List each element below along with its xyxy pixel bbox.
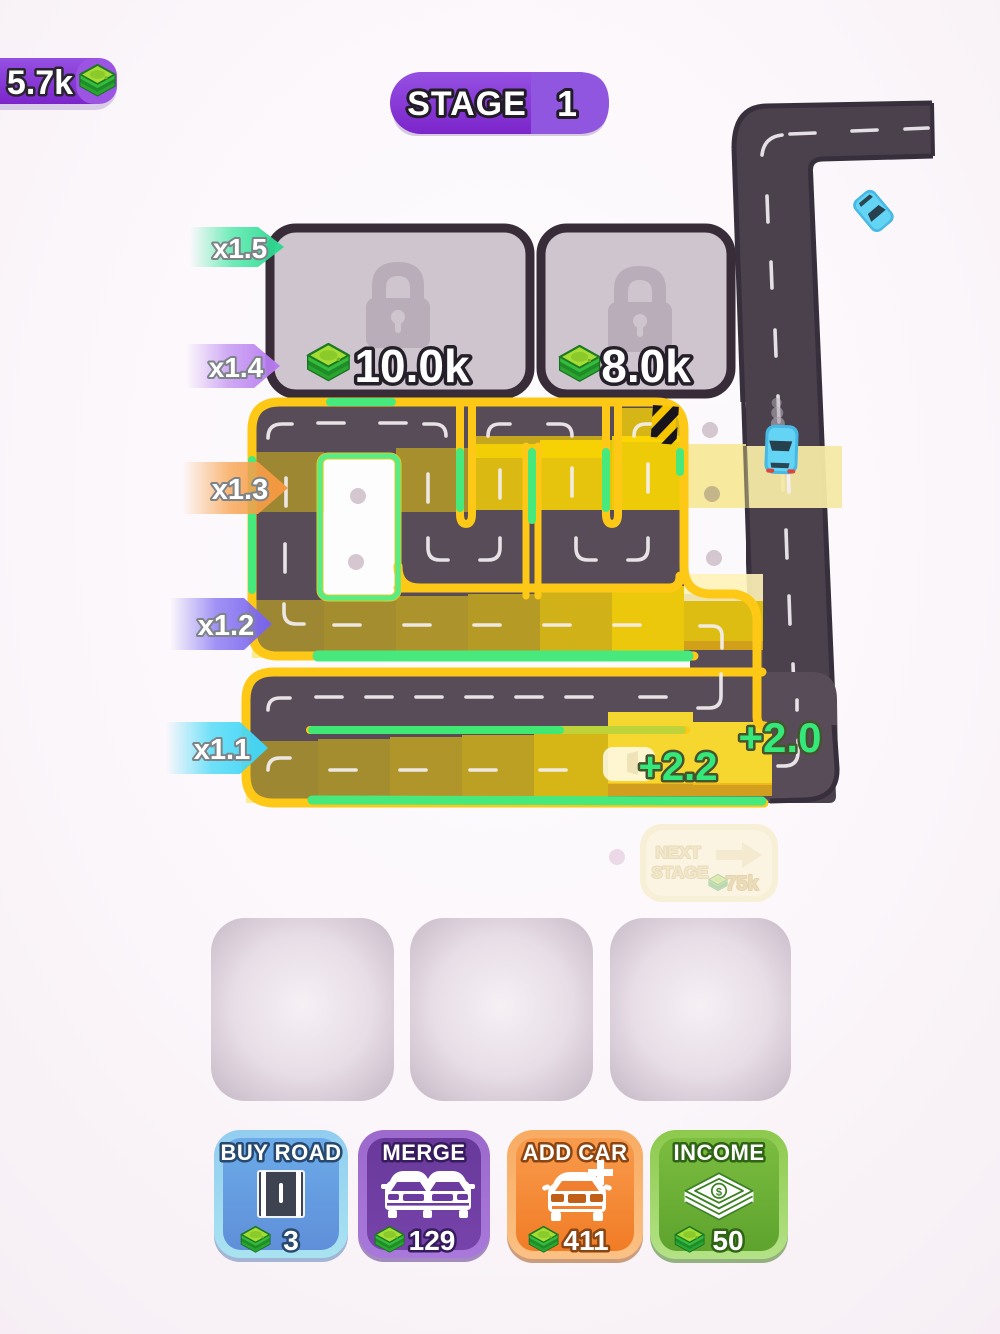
svg-text:$: $ bbox=[716, 1187, 723, 1199]
svg-text:50: 50 bbox=[712, 1225, 743, 1256]
svg-text:3: 3 bbox=[283, 1225, 299, 1256]
svg-text:129: 129 bbox=[409, 1225, 456, 1256]
svg-text:x1.3: x1.3 bbox=[212, 474, 268, 506]
svg-text:411: 411 bbox=[563, 1225, 608, 1256]
svg-text:BUY ROAD: BUY ROAD bbox=[221, 1140, 342, 1165]
svg-text:NEXT: NEXT bbox=[655, 843, 701, 862]
svg-text:75k: 75k bbox=[725, 873, 759, 895]
svg-text:STAGE: STAGE bbox=[651, 863, 708, 882]
svg-text:MERGE: MERGE bbox=[382, 1140, 465, 1165]
svg-text:x1.1: x1.1 bbox=[194, 734, 250, 766]
svg-text:10.0k: 10.0k bbox=[354, 340, 470, 392]
svg-text:INCOME: INCOME bbox=[674, 1140, 765, 1165]
svg-text:x1.2: x1.2 bbox=[198, 610, 254, 642]
svg-text:STAGE: STAGE bbox=[407, 85, 527, 123]
svg-text:+2.0: +2.0 bbox=[739, 714, 822, 761]
svg-text:8.0k: 8.0k bbox=[601, 340, 691, 392]
svg-text:5.7k: 5.7k bbox=[7, 64, 73, 102]
svg-text:ADD CAR: ADD CAR bbox=[523, 1140, 628, 1165]
svg-text:x1.4: x1.4 bbox=[209, 352, 264, 383]
svg-text:1: 1 bbox=[557, 83, 577, 124]
svg-text:+2.2: +2.2 bbox=[639, 745, 718, 789]
svg-text:x1.5: x1.5 bbox=[213, 233, 268, 264]
